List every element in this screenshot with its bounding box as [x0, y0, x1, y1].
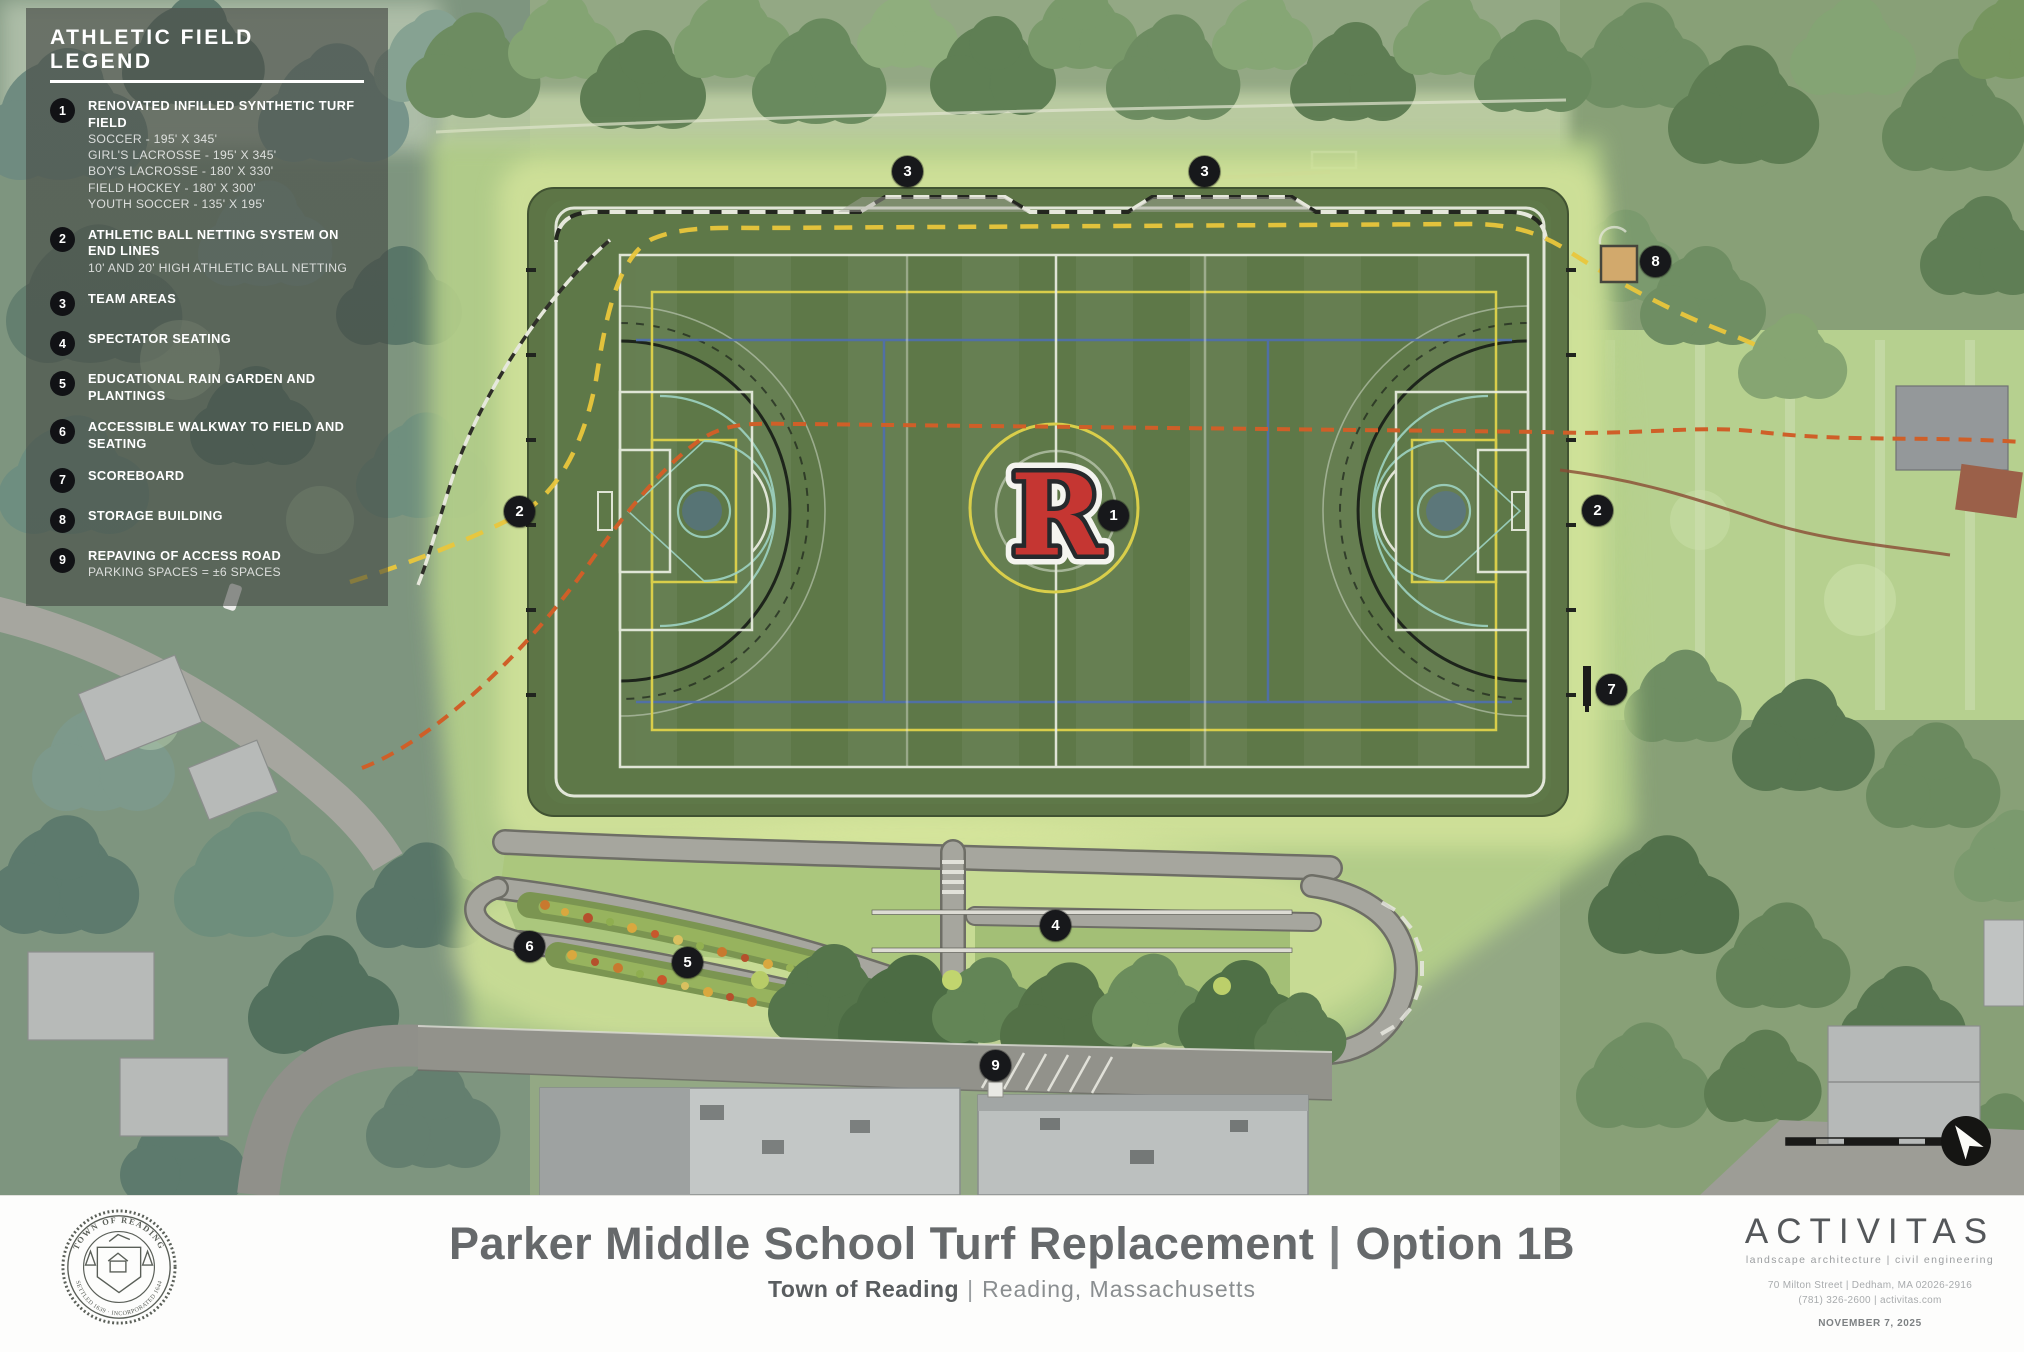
legend-items: 1RENOVATED INFILLED SYNTHETIC TURF FIELD…: [50, 98, 364, 580]
plan-marker-3: 3: [892, 156, 923, 187]
plan-marker-3: 3: [1189, 156, 1220, 187]
firm-block: ACTIVITAS landscape architecture | civil…: [1742, 1212, 1998, 1329]
plan-marker-2: 2: [504, 496, 535, 527]
plan-marker-9: 9: [980, 1050, 1011, 1081]
legend-badge-2: 2: [50, 227, 75, 252]
legend-text: STORAGE BUILDING: [88, 508, 223, 525]
legend-badge-8: 8: [50, 508, 75, 533]
legend-item-9: 9REPAVING OF ACCESS ROADPARKING SPACES =…: [50, 548, 364, 581]
legend-item-8: 8STORAGE BUILDING: [50, 508, 364, 533]
legend-text: REPAVING OF ACCESS ROADPARKING SPACES = …: [88, 548, 281, 581]
project-client: Town of Reading: [768, 1276, 959, 1302]
legend-item-5: 5EDUCATIONAL RAIN GARDEN AND PLANTINGS: [50, 371, 364, 404]
legend-title: ATHLETIC FIELD LEGEND: [50, 26, 364, 83]
plan-marker-1: 1: [1098, 500, 1129, 531]
plan-marker-6: 6: [514, 931, 545, 962]
plan-marker-7: 7: [1596, 674, 1627, 705]
legend-panel: ATHLETIC FIELD LEGEND 1RENOVATED INFILLE…: [26, 8, 388, 606]
project-option: Option 1B: [1355, 1218, 1574, 1269]
firm-address: 70 Milton Street | Dedham, MA 02026-2916…: [1742, 1278, 1998, 1308]
legend-badge-3: 3: [50, 291, 75, 316]
project-location: Reading, Massachusetts: [982, 1276, 1256, 1302]
plan-marker-8: 8: [1640, 246, 1671, 277]
plan-marker-4: 4: [1040, 910, 1071, 941]
project-title: Parker Middle School Turf Replacement|Op…: [0, 1218, 2024, 1270]
legend-item-3: 3TEAM AREAS: [50, 291, 364, 316]
legend-item-1: 1RENOVATED INFILLED SYNTHETIC TURF FIELD…: [50, 98, 364, 212]
firm-phone-web: (781) 326-2600 | activitas.com: [1742, 1293, 1998, 1308]
legend-text: TEAM AREAS: [88, 291, 176, 308]
legend-text: SCOREBOARD: [88, 468, 184, 485]
subtitle-separator: |: [959, 1276, 982, 1302]
legend-badge-5: 5: [50, 371, 75, 396]
legend-text: ACCESSIBLE WALKWAY TO FIELD AND SEATING: [88, 419, 364, 452]
firm-tagline: landscape architecture | civil engineeri…: [1742, 1254, 1998, 1266]
legend-item-6: 6ACCESSIBLE WALKWAY TO FIELD AND SEATING: [50, 419, 364, 452]
legend-text: RENOVATED INFILLED SYNTHETIC TURF FIELDS…: [88, 98, 364, 212]
plan-date: NOVEMBER 7, 2025: [1742, 1318, 1998, 1329]
project-titles: Parker Middle School Turf Replacement|Op…: [0, 1196, 2024, 1303]
legend-item-2: 2ATHLETIC BALL NETTING SYSTEM ON END LIN…: [50, 227, 364, 276]
legend-text: SPECTATOR SEATING: [88, 331, 231, 348]
project-title-main: Parker Middle School Turf Replacement: [449, 1218, 1314, 1269]
legend-badge-6: 6: [50, 419, 75, 444]
legend-badge-1: 1: [50, 98, 75, 123]
firm-address-line: 70 Milton Street | Dedham, MA 02026-2916: [1742, 1278, 1998, 1293]
legend-item-4: 4SPECTATOR SEATING: [50, 331, 364, 356]
project-subtitle: Town of Reading|Reading, Massachusetts: [0, 1276, 2024, 1303]
plan-marker-5: 5: [672, 947, 703, 978]
legend-badge-4: 4: [50, 331, 75, 356]
legend-badge-7: 7: [50, 468, 75, 493]
site-plan-sheet: R R R: [0, 0, 2024, 1352]
title-separator: |: [1314, 1218, 1355, 1269]
legend-item-7: 7SCOREBOARD: [50, 468, 364, 493]
legend-badge-9: 9: [50, 548, 75, 573]
firm-name: ACTIVITAS: [1742, 1212, 1998, 1252]
legend-text: EDUCATIONAL RAIN GARDEN AND PLANTINGS: [88, 371, 364, 404]
title-block: TOWN OF READING SETTLED 1639 · INCORPORA…: [0, 1195, 2024, 1352]
legend-text: ATHLETIC BALL NETTING SYSTEM ON END LINE…: [88, 227, 364, 276]
plan-marker-2: 2: [1582, 495, 1613, 526]
